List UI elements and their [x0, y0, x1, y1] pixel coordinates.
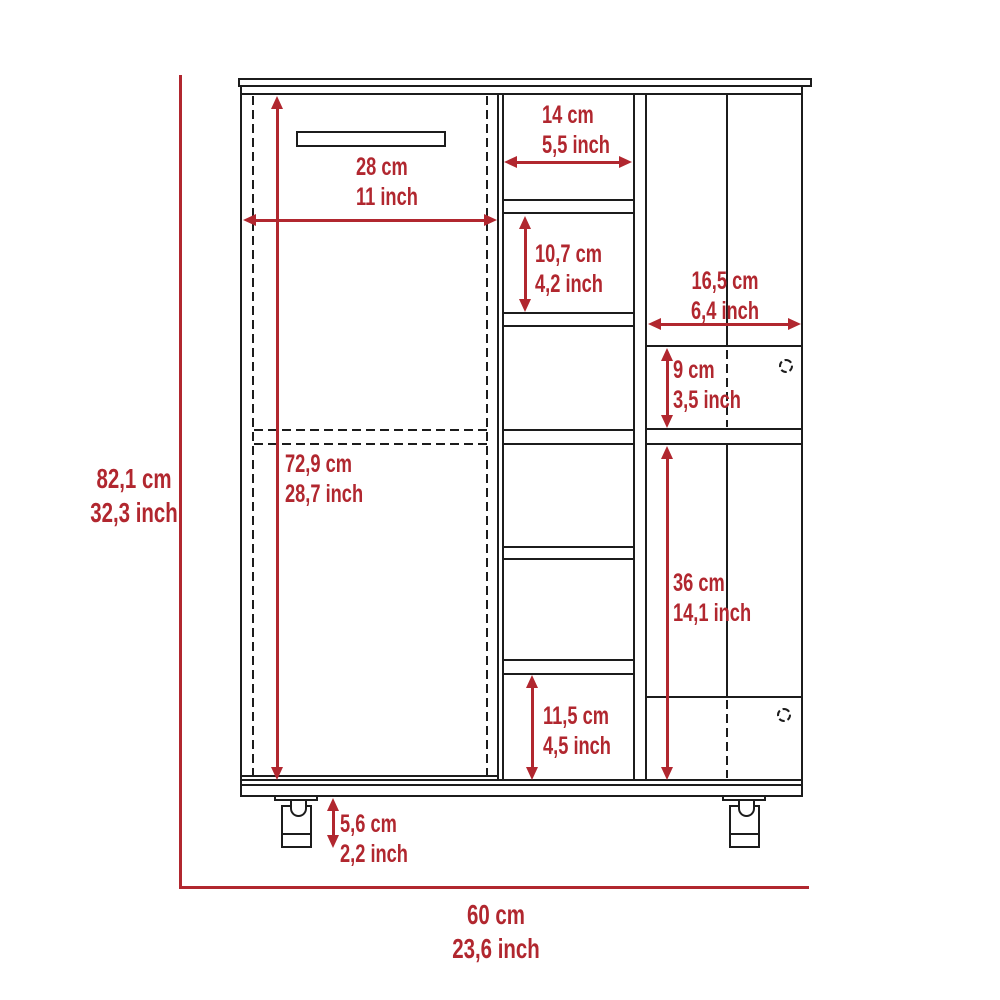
dim-label-left-door-height: 72,9 cm 28,7 inch — [285, 449, 363, 509]
dim-label-bottom-cubby-height: 11,5 cm 4,5 inch — [543, 701, 611, 761]
furniture-dimension-diagram: 82,1 cm 32,3 inch 60 cm 23,6 inch 28 cm … — [0, 0, 1000, 1000]
arrowhead-down-icon — [519, 299, 531, 312]
dim-cm-value: 11,5 cm — [543, 701, 611, 731]
arrow-shaft — [666, 354, 669, 422]
dim-inch-value: 3,5 inch — [673, 385, 741, 415]
arrowhead-down-icon — [526, 767, 538, 780]
cabinet-interior-top-line — [240, 93, 803, 95]
cubby-shelf-line — [504, 443, 633, 445]
dim-inch-value: 23,6 inch — [452, 932, 539, 966]
right-door-swing-dashed-lower — [726, 700, 728, 778]
overall-height-extension-line — [179, 75, 182, 888]
dim-label-caster-height: 5,6 cm 2,2 inch — [340, 809, 408, 869]
arrow-left-door-height — [271, 96, 284, 780]
left-caster-plate — [274, 795, 318, 801]
arrow-bottom-cubby-height — [526, 675, 539, 780]
cubby-shelf-line — [504, 429, 633, 431]
dim-inch-value: 32,3 inch — [90, 496, 177, 530]
wall-cubby-right-inner — [645, 95, 647, 781]
left-caster-wheel-base — [281, 833, 312, 848]
door-knob-lower — [777, 708, 791, 722]
dim-cm-value: 36 cm — [673, 568, 751, 598]
arrow-shaft — [524, 222, 527, 306]
door-hidden-shelf-line-lower — [254, 443, 487, 445]
cabinet-left-edge — [240, 87, 242, 797]
plinth-top-line — [240, 784, 803, 786]
dim-label-left-door-width: 28 cm 11 inch — [356, 152, 418, 212]
wall-door-cubby-inner — [502, 95, 504, 781]
dim-cm-value: 60 cm — [452, 898, 539, 932]
arrowhead-right-icon — [788, 318, 801, 330]
cubby-shelf-line — [504, 673, 633, 675]
arrow-shaft — [531, 681, 534, 774]
dim-inch-value: 28,7 inch — [285, 479, 363, 509]
cubby-shelf-line — [504, 546, 633, 548]
arrowhead-down-icon — [661, 767, 673, 780]
dim-inch-value: 11 inch — [356, 182, 418, 212]
dim-cm-value: 9 cm — [673, 355, 741, 385]
dim-label-small-compartment-height: 9 cm 3,5 inch — [673, 355, 741, 415]
cubby-shelf-line — [504, 212, 633, 214]
arrowhead-down-icon — [271, 767, 283, 780]
arrow-shaft — [276, 102, 279, 774]
dim-cm-value: 28 cm — [356, 152, 418, 182]
door-hidden-shelf-line-upper — [254, 429, 487, 431]
dim-label-right-section-width: 16,5 cm 6,4 inch — [691, 266, 759, 326]
right-section-divider-line — [647, 428, 801, 430]
dim-inch-value: 14,1 inch — [673, 598, 751, 628]
arrow-shaft — [510, 161, 626, 164]
cubby-shelf-line — [504, 325, 633, 327]
cubby-shelf-line — [504, 312, 633, 314]
door-hidden-edge-left — [252, 96, 254, 779]
dim-inch-value: 5,5 inch — [542, 130, 610, 160]
right-caster-plate — [722, 795, 766, 801]
cabinet-top-panel — [238, 78, 812, 87]
arrow-caster-height — [327, 798, 340, 848]
dim-inch-value: 6,4 inch — [691, 296, 759, 326]
dim-cm-value: 14 cm — [542, 100, 610, 130]
cabinet-interior-bottom-line — [242, 779, 802, 781]
dim-cm-value: 82,1 cm — [90, 462, 177, 496]
arrowhead-down-icon — [661, 415, 673, 428]
dim-cm-value: 72,9 cm — [285, 449, 363, 479]
arrow-shaft — [249, 219, 491, 222]
wall-door-cubby-outer — [497, 95, 499, 781]
dim-label-overall-height: 82,1 cm 32,3 inch — [90, 462, 177, 530]
arrowhead-right-icon — [484, 214, 497, 226]
dim-cm-value: 16,5 cm — [691, 266, 759, 296]
arrow-cubby-height — [519, 216, 532, 312]
cabinet-bottom-edge — [240, 795, 803, 797]
arrowhead-down-icon — [327, 835, 339, 848]
dim-inch-value: 4,2 inch — [535, 269, 603, 299]
wall-cubby-right-outer — [633, 95, 635, 781]
cubby-shelf-line — [504, 558, 633, 560]
dim-label-cubby-height: 10,7 cm 4,2 inch — [535, 239, 603, 299]
dim-label-cubby-width: 14 cm 5,5 inch — [542, 100, 610, 160]
dim-cm-value: 5,6 cm — [340, 809, 408, 839]
arrowhead-right-icon — [619, 156, 632, 168]
right-section-divider-line — [647, 443, 801, 445]
dim-inch-value: 4,5 inch — [543, 731, 611, 761]
right-section-divider-line — [647, 345, 801, 347]
dim-cm-value: 10,7 cm — [535, 239, 603, 269]
overall-width-extension-line — [179, 886, 809, 889]
cabinet-right-edge — [801, 87, 803, 797]
right-caster-wheel-base — [729, 833, 760, 848]
cubby-shelf-line — [504, 199, 633, 201]
dim-label-overall-width: 60 cm 23,6 inch — [452, 898, 539, 966]
door-knob-upper — [779, 359, 793, 373]
door-handle — [296, 131, 446, 147]
cubby-shelf-line — [504, 659, 633, 661]
dim-label-lower-door-height: 36 cm 14,1 inch — [673, 568, 751, 628]
arrow-shaft — [666, 452, 669, 774]
door-hidden-edge-right — [486, 96, 488, 779]
dim-inch-value: 2,2 inch — [340, 839, 408, 869]
